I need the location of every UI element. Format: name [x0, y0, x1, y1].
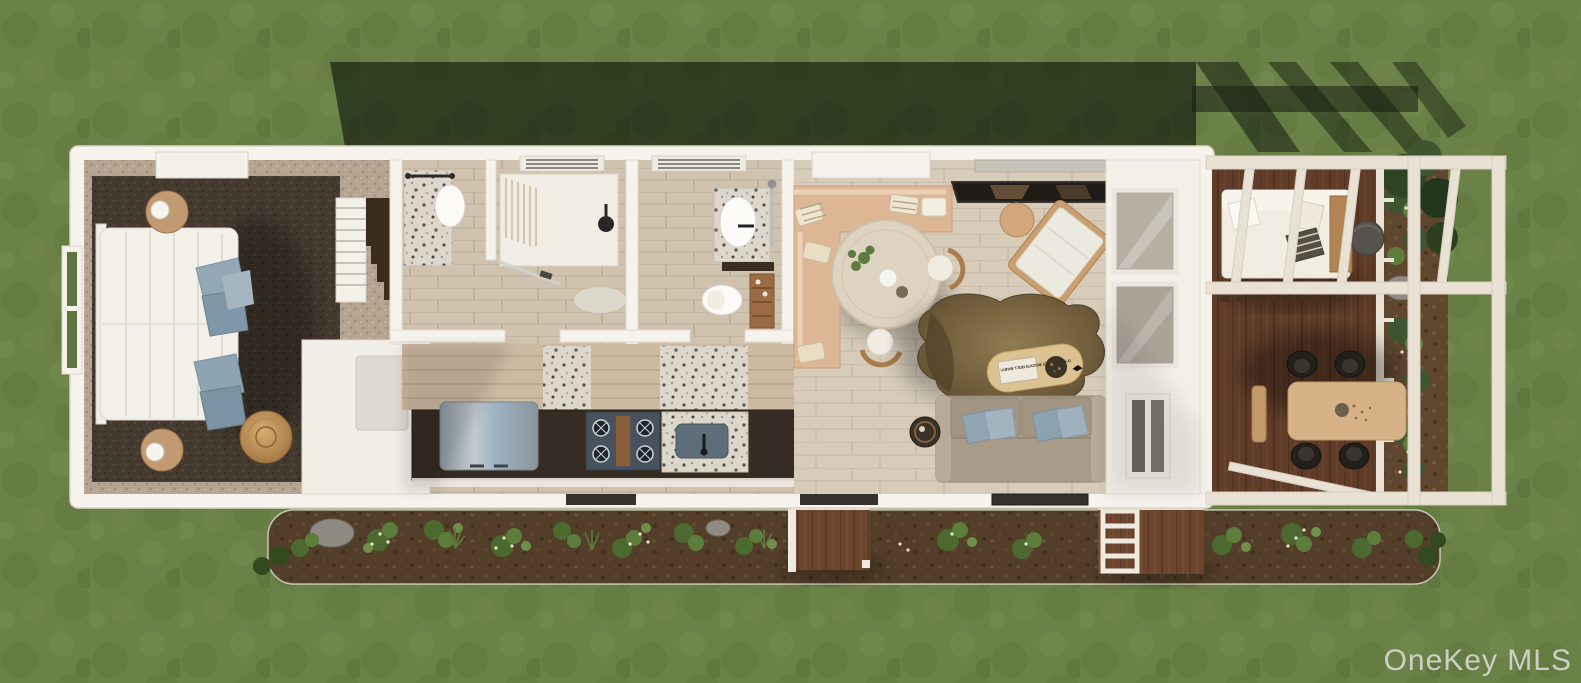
- bowl: [896, 286, 908, 298]
- dining-console: [812, 152, 930, 178]
- shower-head: [598, 216, 614, 232]
- nightstand-bottom: [141, 429, 183, 471]
- dining-table: [832, 220, 940, 328]
- side-table: [1000, 203, 1034, 237]
- bedroom-window: [62, 246, 82, 374]
- sofa-side-table: [910, 417, 940, 447]
- wardrobe-glass-upper: [1114, 190, 1176, 272]
- backsplash-terrazzo: [543, 346, 591, 410]
- house: IT'S NOT ONLY ROCK'N ROLL BABY!: [62, 146, 1214, 508]
- skylight-glass-panel: [952, 182, 1114, 202]
- ladder-shelf: [750, 274, 774, 328]
- outdoor-vase: [1335, 403, 1349, 417]
- outdoor-bench: [1252, 386, 1266, 442]
- wall-shelf: [722, 262, 774, 271]
- vanity-sink: [435, 185, 465, 227]
- sofa-arm-right: [1091, 396, 1106, 482]
- bath-mat: [574, 287, 626, 313]
- stoop-right: [1095, 506, 1215, 586]
- wc-sink: [720, 197, 756, 247]
- open-door: [356, 356, 408, 430]
- watermark: OneKey MLS: [1384, 644, 1572, 677]
- stoop-left: [780, 506, 884, 584]
- woven-pouf: [240, 411, 292, 463]
- vase: [879, 269, 897, 287]
- outdoor-pouf: [1350, 221, 1384, 255]
- transom-window: [975, 160, 1107, 172]
- stoop-railing: [788, 508, 796, 572]
- table-lamp: [146, 443, 164, 461]
- bed: [96, 224, 254, 430]
- nightstand-top: [146, 191, 188, 233]
- range-stove: [586, 412, 660, 470]
- floor-plan-render: IT'S NOT ONLY ROCK'N ROLL BABY!: [0, 0, 1581, 683]
- dresser: [156, 152, 248, 178]
- kitchen: [402, 344, 808, 492]
- table-lamp: [151, 201, 169, 219]
- sofa: [936, 396, 1106, 482]
- kitchen-sink: [662, 412, 748, 472]
- closet-wall: [1106, 160, 1200, 494]
